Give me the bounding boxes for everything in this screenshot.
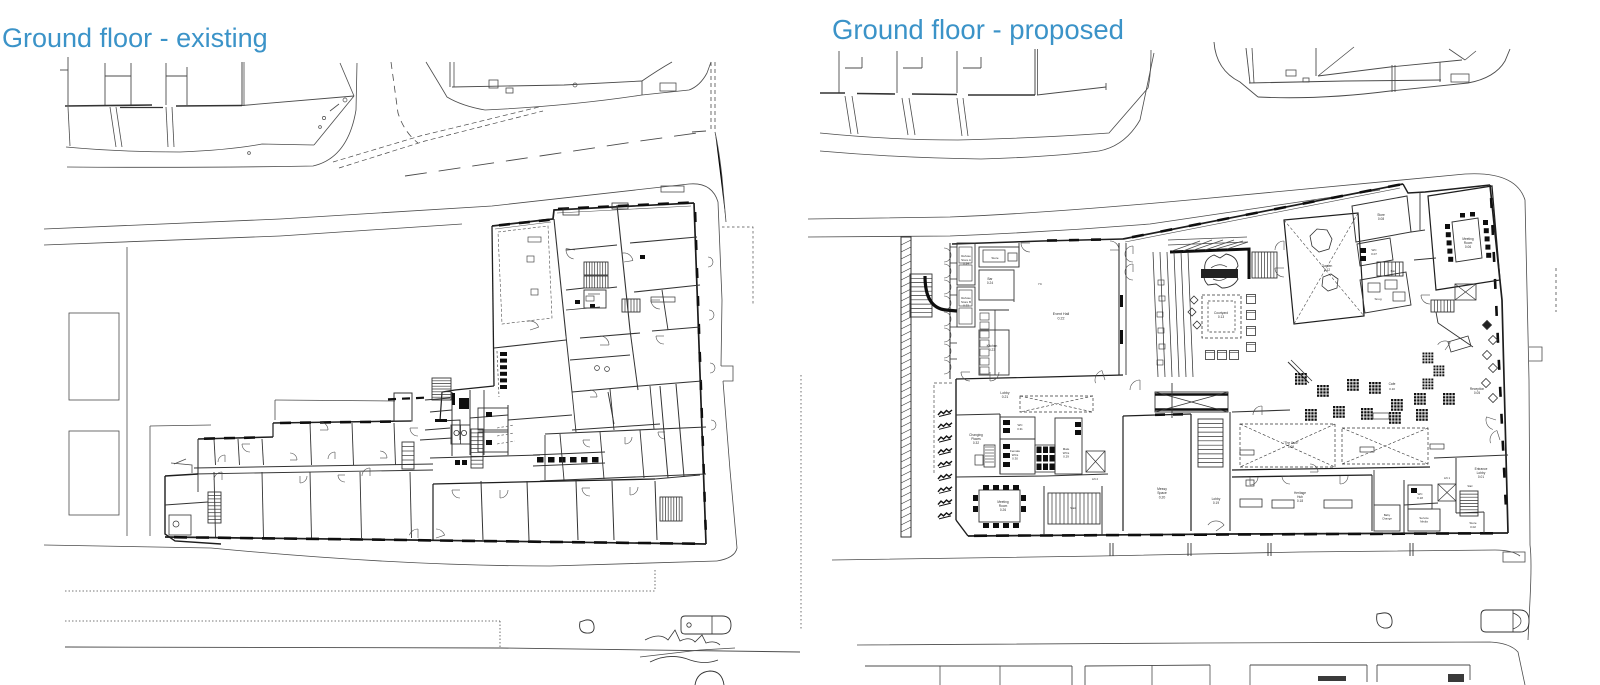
svg-text:Ground floor - proposed: Ground floor - proposed — [832, 14, 1124, 45]
svg-text:Ground floor - existing: Ground floor - existing — [2, 23, 268, 53]
svg-text:0.26: 0.26 — [1000, 508, 1006, 512]
svg-text:0.30: 0.30 — [1012, 457, 1018, 461]
svg-text:0.31: 0.31 — [1017, 427, 1023, 431]
svg-text:Event Hall: Event Hall — [1053, 312, 1070, 316]
svg-text:0.06: 0.06 — [1465, 245, 1471, 249]
svg-text:0.22: 0.22 — [1058, 316, 1065, 320]
svg-text:0.18: 0.18 — [1417, 496, 1423, 500]
svg-text:0.01: 0.01 — [1478, 475, 1484, 479]
svg-text:0.23: 0.23 — [989, 348, 995, 352]
svg-text:0.19: 0.19 — [1213, 501, 1219, 505]
svg-text:0.07: 0.07 — [1371, 252, 1377, 256]
svg-text:Cafe: Cafe — [1389, 382, 1396, 386]
svg-text:Lift 1: Lift 1 — [1444, 476, 1451, 480]
svg-text:0.33: 0.33 — [963, 304, 969, 308]
svg-text:0.20: 0.20 — [1159, 495, 1166, 499]
svg-text:Stair: Stair — [1070, 506, 1076, 510]
svg-text:0.12: 0.12 — [1324, 268, 1330, 272]
svg-text:0.09: 0.09 — [1288, 445, 1294, 449]
svg-text:0.32: 0.32 — [973, 441, 979, 445]
svg-text:Stair: Stair — [1467, 484, 1472, 488]
svg-text:0.05: 0.05 — [1474, 391, 1480, 395]
svg-text:Snug: Snug — [1374, 297, 1381, 301]
svg-text:0.13: 0.13 — [1218, 315, 1224, 319]
svg-text:Store: Store — [991, 256, 999, 260]
svg-text:Lift 2: Lift 2 — [1092, 477, 1099, 481]
svg-text:0.34: 0.34 — [963, 262, 969, 266]
svg-text:0.08: 0.08 — [1378, 217, 1384, 221]
svg-text:Bar: Bar — [1391, 269, 1396, 273]
svg-text:0.24: 0.24 — [987, 281, 993, 285]
svg-text:0.10: 0.10 — [1389, 387, 1395, 391]
svg-text:Change: Change — [1382, 517, 1392, 521]
svg-text:0.29: 0.29 — [1063, 455, 1069, 459]
svg-text:0.02: 0.02 — [1470, 525, 1476, 529]
svg-text:Media: Media — [1420, 520, 1428, 524]
svg-text:0.18: 0.18 — [1297, 499, 1303, 503]
svg-text:0.21: 0.21 — [1002, 395, 1009, 399]
